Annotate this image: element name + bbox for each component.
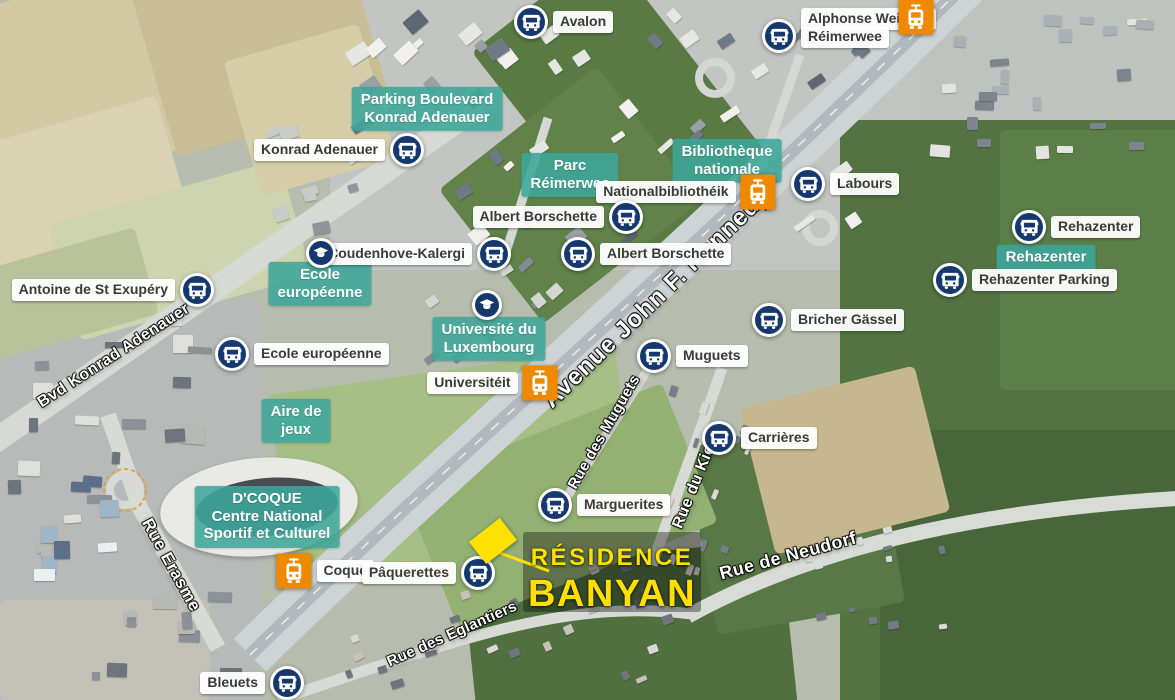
poi-label-line: D'COQUE	[204, 490, 331, 508]
stop-label: Marguerites	[577, 494, 670, 516]
bus-icon	[270, 666, 304, 700]
poi-label-line: Université du	[441, 321, 536, 339]
poi-label-line: Aire de	[271, 403, 322, 421]
stop-label: Labours	[830, 173, 899, 195]
stop-label: Rehazenter	[1051, 216, 1140, 238]
bus-icon	[215, 337, 249, 371]
poi-label-rehazenter: Rehazenter	[997, 245, 1096, 272]
poi-label-line: Bibliothèque	[682, 143, 773, 161]
stop-label: Muguets	[676, 345, 748, 367]
poi-label-ecole: Ecoleeuropéenne	[268, 262, 371, 306]
poi-label-line: jeux	[271, 421, 322, 439]
bus-icon	[180, 273, 214, 307]
residence-name: RÉSIDENCE BANYAN	[528, 544, 696, 616]
stop-label: Ecole européenne	[254, 343, 389, 365]
bus-icon	[637, 339, 671, 373]
stop-label: Bricher Gässel	[791, 309, 904, 331]
poi-label-line: Centre National	[204, 508, 331, 526]
stop-label: Carrières	[741, 427, 817, 449]
poi-label-line: Konrad Adenauer	[361, 109, 494, 127]
residence-name-line1: RÉSIDENCE	[528, 544, 696, 572]
bus-icon	[538, 488, 572, 522]
bus-icon	[791, 167, 825, 201]
satellite-map: Avenue John F. KennedyBvd Konrad Adenaue…	[0, 0, 1175, 700]
bus-icon	[762, 19, 796, 53]
stop-label: Albert Borschette	[600, 243, 731, 265]
poi-label-line: européenne	[277, 284, 362, 302]
tram-icon	[741, 175, 776, 210]
bus-icon	[1012, 210, 1046, 244]
poi-label-line: Ecole	[277, 266, 362, 284]
tram-icon	[899, 0, 934, 35]
bus-icon	[752, 303, 786, 337]
stop-label: Konrad Adenauer	[254, 139, 385, 161]
stop-label: Réimerwee	[801, 26, 889, 48]
bus-icon	[477, 237, 511, 271]
bus-icon	[702, 421, 736, 455]
stop-label: Coudenhove-Kalergi	[321, 243, 472, 265]
graduation-cap-icon	[306, 238, 336, 268]
bus-icon	[390, 133, 424, 167]
poi-label-line: Sportif et Culturel	[204, 525, 331, 543]
tram-icon	[277, 554, 312, 589]
bus-icon	[561, 237, 595, 271]
poi-label-d-coque: D'COQUECentre NationalSportif et Culture…	[195, 486, 340, 548]
bus-icon	[933, 263, 967, 297]
stop-label: Albert Borschette	[473, 206, 604, 228]
stop-label: Rehazenter Parking	[972, 269, 1117, 291]
stop-label: Nationalbibliothéik	[596, 181, 735, 203]
stop-label: Bleuets	[200, 672, 265, 694]
bus-icon	[609, 200, 643, 234]
stop-label: Antoine de St Exupéry	[12, 279, 175, 301]
poi-label-line: Luxembourg	[441, 339, 536, 357]
tram-icon	[523, 366, 558, 401]
bus-icon	[514, 5, 548, 39]
poi-label-line: Rehazenter	[1006, 249, 1087, 267]
stop-label: Pâquerettes	[362, 562, 456, 584]
poi-label-aire-de: Aire dejeux	[262, 399, 331, 443]
poi-label-parking-boulevard: Parking BoulevardKonrad Adenauer	[352, 87, 503, 131]
stop-label: Universitéit	[427, 372, 517, 394]
poi-label-line: Parking Boulevard	[361, 91, 494, 109]
graduation-cap-icon	[472, 290, 502, 320]
stop-label: Avalon	[553, 11, 613, 33]
residence-name-line2: BANYAN	[528, 573, 696, 616]
poi-label-line: Parc	[530, 157, 609, 175]
poi-label-universite-du: Université duLuxembourg	[432, 317, 545, 361]
